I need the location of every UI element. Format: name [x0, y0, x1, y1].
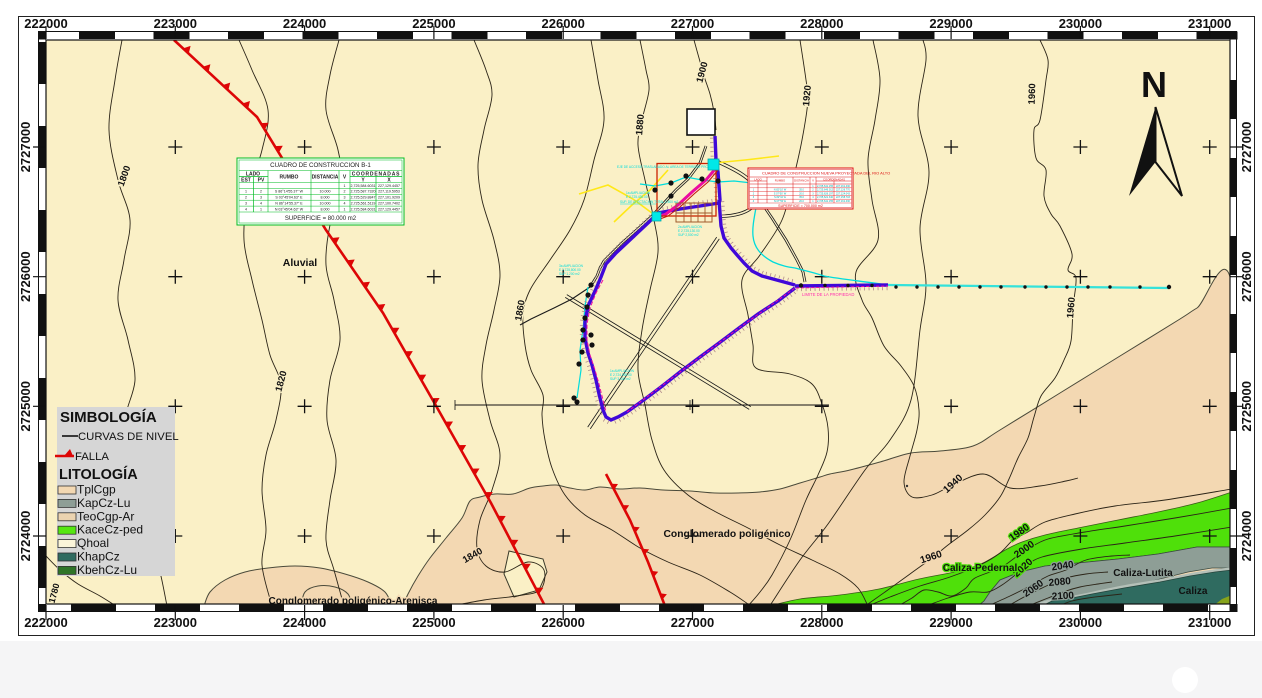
svg-text:2,725,529.8847: 2,725,529.8847: [351, 196, 376, 200]
svg-text:227,161.430: 227,161.430: [836, 200, 851, 203]
svg-text:SUPERFICIE = 700.000 m2: SUPERFICIE = 700.000 m2: [778, 204, 823, 208]
svg-text:S 03°45'04.63" E: S 03°45'04.63" E: [275, 196, 303, 200]
svg-text:LADO: LADO: [754, 177, 762, 181]
svg-text:227,129.4457: 227,129.4457: [378, 207, 400, 211]
svg-text:KaceCz-ped: KaceCz-ped: [77, 523, 143, 537]
svg-text:EST: EST: [241, 178, 251, 184]
svg-text:2,725,584.6031: 2,725,584.6031: [351, 184, 376, 188]
svg-text:TeoCgp-Ar: TeoCgp-Ar: [77, 509, 134, 523]
svg-text:226000: 226000: [542, 16, 585, 31]
svg-text:227000: 227000: [671, 16, 714, 31]
svg-text:DISTANCIA: DISTANCIA: [794, 179, 809, 183]
svg-text:2726000: 2726000: [1239, 251, 1254, 302]
svg-text:224000: 224000: [283, 16, 326, 31]
svg-text:Conglomerado poligénico: Conglomerado poligénico: [664, 529, 791, 540]
svg-text:4: 4: [344, 202, 346, 206]
svg-text:1960: 1960: [1027, 83, 1039, 105]
svg-text:10.000: 10.000: [320, 202, 331, 206]
svg-text:S 82°10' E: S 82°10' E: [774, 196, 786, 199]
svg-text:Caliza-Lutita: Caliza-Lutita: [1113, 568, 1173, 579]
svg-text:LIMITE DE LA PROPIEDAD: LIMITE DE LA PROPIEDAD: [802, 292, 854, 297]
svg-text:35.0: 35.0: [799, 196, 804, 199]
svg-text:2724000: 2724000: [1239, 511, 1254, 562]
svg-text:2: 2: [260, 190, 262, 194]
svg-text:N: N: [1141, 64, 1167, 105]
svg-text:227,158.703: 227,158.703: [836, 196, 851, 199]
svg-text:2724000: 2724000: [18, 511, 33, 562]
svg-text:231000: 231000: [1188, 16, 1231, 31]
svg-text:E 2,725,430.00: E 2,725,430.00: [626, 195, 648, 199]
svg-text:20.0: 20.0: [799, 192, 804, 195]
svg-text:2,725,561.5119: 2,725,561.5119: [351, 202, 376, 206]
svg-text:225000: 225000: [412, 615, 455, 630]
svg-text:222000: 222000: [24, 16, 67, 31]
svg-text:1960: 1960: [1065, 297, 1078, 319]
svg-text:228000: 228000: [800, 615, 843, 630]
svg-text:2725000: 2725000: [18, 381, 33, 432]
svg-text:223000: 223000: [154, 16, 197, 31]
svg-text:227,161.430: 227,161.430: [836, 185, 851, 188]
svg-text:20.0: 20.0: [799, 200, 804, 203]
svg-text:PV: PV: [258, 178, 265, 184]
svg-text:230000: 230000: [1059, 16, 1102, 31]
svg-text:EJE DE ACCESO TRASLADADO AL AR: EJE DE ACCESO TRASLADADO AL AREA DE TERR…: [617, 165, 711, 169]
svg-text:2725000: 2725000: [1239, 381, 1254, 432]
svg-text:2: 2: [344, 190, 346, 194]
svg-text:1: 1: [344, 207, 346, 211]
svg-text:KbehCz-Lu: KbehCz-Lu: [77, 563, 137, 577]
svg-text:RUMBO: RUMBO: [280, 175, 299, 181]
svg-text:1920: 1920: [801, 85, 814, 107]
svg-text:4: 4: [260, 202, 262, 206]
svg-text:Caliza-Pedernal: Caliza-Pedernal: [943, 563, 1018, 574]
svg-text:COORDENADAS: COORDENADAS: [352, 172, 401, 178]
svg-text:231000: 231000: [1188, 615, 1231, 630]
svg-text:Caliza: Caliza: [1179, 586, 1208, 597]
svg-text:228000: 228000: [800, 16, 843, 31]
svg-text:227,124.043: 227,124.043: [836, 192, 851, 195]
svg-text:DISTANCIA: DISTANCIA: [312, 175, 339, 181]
svg-text:S 86°14'55.37" W: S 86°14'55.37" W: [275, 190, 304, 194]
svg-text:FALLA: FALLA: [75, 451, 109, 463]
svg-text:Aluvial: Aluvial: [283, 257, 318, 269]
svg-text:N 86°14'55.37" E: N 86°14'55.37" E: [275, 202, 303, 206]
svg-text:1: 1: [245, 190, 247, 194]
svg-text:KapCz-Lu: KapCz-Lu: [77, 496, 130, 510]
svg-text:N 03°45'04.63" W: N 03°45'04.63" W: [275, 207, 304, 211]
svg-text:RUMBO: RUMBO: [775, 179, 786, 183]
svg-text:SUPERFICIE = 80.000 m2: SUPERFICIE = 80.000 m2: [285, 216, 357, 222]
svg-text:2,725,584.6031: 2,725,584.6031: [351, 207, 376, 211]
svg-text:229000: 229000: [929, 16, 972, 31]
svg-text:8.000: 8.000: [321, 196, 330, 200]
svg-text:2,725,587.7320: 2,725,587.7320: [351, 190, 376, 194]
svg-text:SUP. DE AFECTACION TOTAL 2,500: SUP. DE AFECTACION TOTAL 2,500 m2: [620, 200, 678, 204]
svg-text:TplCgp: TplCgp: [77, 483, 116, 497]
svg-text:4: 4: [245, 207, 247, 211]
svg-text:224000: 224000: [283, 615, 326, 630]
svg-text:SUP 2,500 m2: SUP 2,500 m2: [678, 233, 699, 237]
svg-text:COORDENADAS: COORDENADAS: [823, 177, 845, 181]
svg-text:S 07°50' W: S 07°50' W: [774, 192, 787, 195]
svg-text:227,100.7402: 227,100.7402: [378, 202, 400, 206]
svg-text:2,725,646.012: 2,725,646.012: [817, 189, 834, 192]
svg-text:2727000: 2727000: [1239, 122, 1254, 173]
svg-text:2,725,626.197: 2,725,626.197: [817, 192, 834, 195]
svg-text:Qhoal: Qhoal: [77, 536, 109, 550]
svg-text:222000: 222000: [24, 615, 67, 630]
svg-text:V: V: [812, 179, 814, 183]
svg-text:SUP 3,400 m2: SUP 3,400 m2: [610, 377, 631, 381]
svg-text:CUADRO DE CONSTRUCCION NUEVA P: CUADRO DE CONSTRUCCION NUEVA PROYECTADA …: [762, 171, 890, 176]
svg-text:N 07°50' E: N 07°50' E: [774, 200, 786, 203]
svg-text:LITOLOGÍA: LITOLOGÍA: [59, 466, 138, 483]
svg-text:SUP 1,200 m2: SUP 1,200 m2: [559, 272, 580, 276]
svg-text:1880: 1880: [634, 114, 647, 136]
svg-text:227,126.770: 227,126.770: [836, 189, 851, 192]
svg-text:230000: 230000: [1059, 615, 1102, 630]
svg-text:2,725,621.340: 2,725,621.340: [817, 196, 834, 199]
svg-text:2,725,641.155: 2,725,641.155: [817, 200, 834, 203]
svg-text:2100: 2100: [1051, 590, 1074, 602]
svg-text:3: 3: [344, 196, 346, 200]
svg-text:N 82°10' W: N 82°10' W: [774, 189, 787, 192]
svg-text:2726000: 2726000: [18, 251, 33, 302]
svg-text:2,725,641.155: 2,725,641.155: [817, 185, 834, 188]
svg-text:SIMBOLOGÍA: SIMBOLOGÍA: [60, 409, 157, 426]
svg-text:10.000: 10.000: [320, 190, 331, 194]
svg-text:226000: 226000: [542, 615, 585, 630]
svg-text:2080: 2080: [1048, 576, 1072, 589]
svg-text:227,101.9209: 227,101.9209: [378, 196, 400, 200]
svg-text:229000: 229000: [929, 615, 972, 630]
svg-text:CURVAS DE NIVEL: CURVAS DE NIVEL: [78, 431, 179, 443]
svg-text:CUADRO DE CONSTRUCCION B-1: CUADRO DE CONSTRUCCION B-1: [270, 162, 371, 169]
svg-text:8.000: 8.000: [321, 207, 330, 211]
svg-text:2: 2: [245, 196, 247, 200]
svg-text:KhapCz: KhapCz: [77, 550, 120, 564]
svg-text:3: 3: [260, 196, 262, 200]
svg-text:227,129.4457: 227,129.4457: [378, 184, 400, 188]
svg-text:227,119.5953: 227,119.5953: [378, 190, 400, 194]
svg-text:223000: 223000: [154, 615, 197, 630]
svg-text:1: 1: [344, 184, 346, 188]
svg-text:2727000: 2727000: [18, 122, 33, 173]
svg-text:3: 3: [245, 202, 247, 206]
svg-text:35.0: 35.0: [799, 189, 804, 192]
svg-text:227000: 227000: [671, 615, 714, 630]
svg-text:1: 1: [260, 207, 262, 211]
svg-text:225000: 225000: [412, 16, 455, 31]
